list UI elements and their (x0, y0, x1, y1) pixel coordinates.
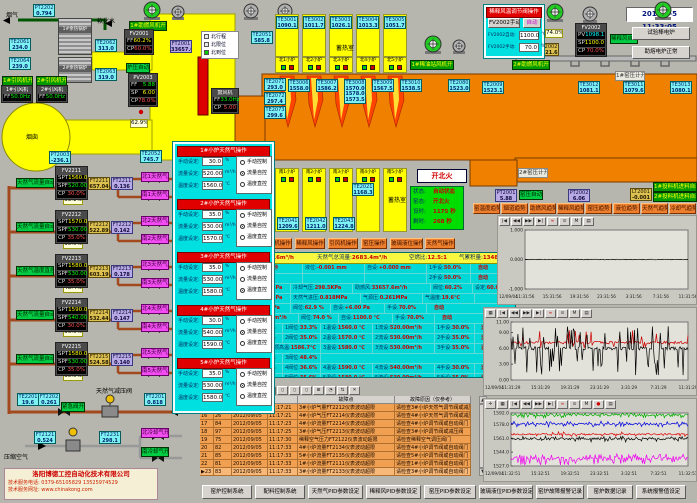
instrument-TE3003: TE30031026.1 (330, 16, 352, 29)
text-label: 烟囱 (26, 132, 38, 141)
utility-button[interactable]: 试验棒电炉 (632, 27, 690, 40)
hmi-furnace-control-screen: 2012-9-5 11:33:05 开北火 洛阳博德工控自动化技术有限公司 技术… (0, 0, 697, 503)
close-indicator (289, 177, 294, 182)
nav-button[interactable]: 窑炉数据记录 (587, 485, 633, 499)
svg-text:7:32:51: 7:32:51 (650, 471, 666, 476)
controller-row: SPT1580.0 (57, 263, 86, 270)
valve-open-badge: 北3天然气开 (141, 260, 169, 270)
valve-open-badge: 北1天然气开 (141, 172, 169, 182)
legend-square-icon (204, 42, 209, 47)
alarm-cell: 3#小炉气压FT2213仪表波动超限 (298, 428, 395, 436)
marker-icon[interactable]: M (569, 309, 580, 318)
text-label: 蓄热室 (336, 43, 354, 52)
setting-label: 温度设定: (178, 341, 200, 348)
rewind-icon[interactable]: ◀◀ (509, 309, 520, 318)
controller-row: FF50.0Hz (38, 94, 66, 101)
unit-label: % (225, 158, 229, 163)
instrument-FT2213: FT22130.178 (111, 265, 133, 278)
zoom-icon[interactable]: ⊙ (557, 309, 568, 318)
operation-button[interactable]: 天然气操作 (425, 238, 455, 249)
info-cell: 3阀位:48.4% (283, 354, 321, 363)
open-indicator (389, 177, 394, 182)
radio-icon (240, 277, 245, 282)
alarm-cell: 26 (214, 412, 232, 420)
legend-item: 北到位 (204, 49, 236, 57)
setting-label: 手动设定: (178, 264, 200, 271)
nav-button[interactable]: 玻璃液位PID参数设定 (479, 485, 533, 499)
setting-input[interactable]: 35.0 (202, 210, 223, 219)
mode-badge: 天然气流量自动 (16, 178, 54, 188)
first-icon[interactable]: |◀ (497, 309, 508, 318)
print-icon[interactable]: ▤ (605, 400, 616, 409)
open-indicator (389, 65, 394, 70)
svg-text:1592.0: 1592.0 (493, 411, 509, 417)
unit-label: m³/h (225, 170, 236, 175)
alarm-cell: 1#小炉流量FT2111仪表波动超限 (298, 460, 395, 468)
close-indicator (370, 65, 375, 70)
delete-icon[interactable]: ✕ (349, 386, 360, 395)
setting-input[interactable]: 1570.0 (202, 234, 223, 243)
radio-icon (240, 372, 245, 377)
info-cell: 1阀位:33.3% (283, 324, 321, 333)
info-cell: 4阀位:36.6% (283, 364, 321, 373)
port-south[interactable]: 南2小炉 (302, 170, 326, 186)
alarm-cell: 18 (200, 428, 214, 436)
info-cell: 1手设:30.0% (435, 324, 475, 333)
info-cell: 5流设:530.00m³/h (373, 374, 435, 378)
instrument-PT2001: PT20015.88 (495, 189, 517, 202)
instrument-FT2202: FT22020.261 (38, 393, 60, 406)
radio-option[interactable]: 手动控制 (237, 157, 271, 168)
controller-row: CP35.0% (57, 367, 86, 374)
controller-title: FV2211 (57, 168, 86, 174)
info-cell: 2手设:50.0% (427, 274, 471, 283)
setting-input[interactable]: 540.00 (202, 328, 223, 337)
manual-button[interactable]: FV2002手动 (488, 18, 520, 28)
mode-badge: 紧急阀开 (61, 402, 85, 412)
alarm-cell: 4#小炉气压FT2214仪表波动超限 (298, 412, 395, 420)
setting-label: 手动设定: (178, 317, 200, 324)
controller-title: FV2001 (126, 31, 152, 37)
unit-label: % (225, 370, 229, 375)
svg-text:7:31:56: 7:31:56 (653, 294, 669, 299)
sheet-icon[interactable]: ▯ (289, 386, 300, 395)
info-cell: 气温度:19.6℃ (423, 294, 475, 303)
alarm-cell: 11:17:30 (268, 436, 298, 444)
alarm-cell: 21 (200, 452, 214, 460)
port-north[interactable]: 北1小炉 (275, 57, 299, 73)
instrument-PT2003: PT2003-236.1 (49, 151, 71, 164)
auto-button[interactable]: 自动 (523, 18, 541, 28)
setpoint-input[interactable]: 1100.0 (519, 31, 539, 40)
legend-item: 北行程 (204, 33, 236, 41)
forward-icon[interactable]: ▶▶ (523, 217, 534, 226)
alarm-cell: ▶23 (200, 468, 214, 476)
instrument-TE3002: TE30021011.7 (303, 16, 325, 29)
mode-badge: 天然气温度直控 (16, 266, 54, 276)
operation-button[interactable]: 引风机操作 (328, 238, 358, 249)
alarm-cell: 11:17:33 (268, 468, 298, 476)
instrument-TE3007: TE30071586.2 (316, 79, 338, 92)
valve-open-badge: 南3天然气开 (141, 278, 169, 288)
close-indicator (289, 65, 294, 70)
port-label: 南3小炉 (329, 170, 353, 176)
alarm-cell: 2012/09/05 (232, 452, 268, 460)
last-icon[interactable]: ▶| (533, 309, 544, 318)
alarm-cell: 2012/09/05 (232, 436, 268, 444)
alarm-cell: 81 (214, 460, 232, 468)
alarm-col-header: 故障点 (298, 396, 395, 404)
curve-icon[interactable]: ≈ (547, 217, 558, 226)
instrument-TE3013: TE30131080.1 (670, 81, 692, 94)
status-row: 设时:1175 秒 (411, 207, 463, 217)
last-icon[interactable]: ▶| (535, 217, 546, 226)
controller-FV2002: FV2002PV1098.1SP1100.0CP70.0% (575, 23, 607, 57)
port-label: 南2小炉 (302, 170, 326, 176)
chart-toolbar: ✛▦|◀◀◀▶▶▶|≈⊙M●▤ (484, 399, 696, 410)
boiler-label: 1#余热锅炉 (59, 27, 91, 33)
radio-option[interactable]: 温度直控 (237, 285, 271, 296)
port-south[interactable]: 南5小炉 (383, 170, 407, 186)
radio-option[interactable]: 温度直控 (237, 179, 271, 190)
controller-row: CP35.0% (57, 235, 86, 242)
svg-text:15:31:56: 15:31:56 (543, 294, 562, 299)
info-cell: 阀位:62.9 % (291, 304, 331, 313)
alarm-cell: 16 (200, 412, 214, 420)
text-label: 软化水 (97, 16, 115, 25)
instrument-TE3004: TE30041013.3 (357, 16, 379, 29)
setpoint-input[interactable]: 70.0 (519, 43, 539, 52)
unit-label: ℃ (225, 235, 230, 240)
setting-label: 温度设定: (178, 182, 200, 189)
port-label: 北4小炉 (357, 58, 379, 64)
radio-option[interactable]: 手动控制 (237, 369, 271, 380)
reversal-legend: 北行程北限位北到位 (201, 31, 239, 59)
setting-input[interactable]: 35.0 (202, 263, 223, 272)
stop-icon[interactable]: ● (593, 400, 604, 409)
instrument-TE2073: TE2073299.6 (264, 106, 286, 119)
info-cell: 4温设:1590.0 ℃ (321, 364, 373, 373)
nav-button[interactable]: 窑炉故障报警记录 (536, 485, 584, 499)
radio-icon (240, 319, 245, 324)
nav-button[interactable]: 系统报警值设定 (636, 485, 686, 499)
window-icon[interactable]: ⊞ (313, 386, 324, 395)
radio-option[interactable]: 手动控制 (237, 263, 271, 274)
marker-icon[interactable]: M (571, 217, 582, 226)
alarm-cell: 4#小炉流量FT2214仪表波动超限 (298, 420, 395, 428)
svg-text:23:31:56: 23:31:56 (597, 294, 616, 299)
trend-button[interactable]: 天然气趋势 (641, 203, 668, 214)
controller-row: FF50.0Hz (3, 94, 31, 101)
instrument-FT2213: FT2213603.19 (88, 265, 110, 278)
instrument-FT2212: FT2212522.89 (88, 221, 110, 234)
sort-icon[interactable]: ⇅ (337, 386, 348, 395)
setting-input[interactable]: 1590.0 (202, 340, 223, 349)
instrument-TE2071: TE2071293.0 (264, 78, 286, 91)
rewind-icon[interactable]: ◀◀ (521, 400, 532, 409)
grid-icon[interactable]: ▦ (497, 400, 508, 409)
controller-FV2211: FV2211SPT1560.0SPF520.00CP30.0% (55, 166, 88, 200)
print-icon[interactable]: ▤ (583, 217, 594, 226)
info-cell: 自设:1100.0 ℃ (339, 314, 393, 323)
curve-icon[interactable]: ≈ (545, 309, 556, 318)
port-south[interactable]: 南3小炉 (329, 170, 353, 186)
setting-label: 温度设定: (178, 394, 200, 401)
controller-row: SPF530.00 (57, 271, 86, 278)
controller-FV2001: FV2001FF60.2%CP60.0% (124, 29, 154, 55)
open-indicator (335, 65, 340, 70)
open-indicator (308, 65, 313, 70)
alarm-cell: 请检查1#小炉调节阀或自动阀门 (395, 460, 471, 468)
port-indicators (357, 65, 379, 70)
operation-button[interactable]: 稀释风操作 (295, 238, 325, 249)
svg-text:7:31:29: 7:31:29 (650, 385, 666, 390)
svg-text:1544.0: 1544.0 (493, 450, 509, 456)
operation-button[interactable]: 窑压操作 (361, 238, 387, 249)
alarm-cell: 84 (214, 420, 232, 428)
setting-input[interactable]: 530.00 (202, 222, 223, 231)
trend-button[interactable]: 液位趋势 (613, 203, 640, 214)
port-indicators (384, 65, 406, 70)
port-indicators (303, 65, 325, 70)
port-indicators (302, 177, 326, 182)
setting-label: 流量设定: (178, 382, 200, 389)
open-indicator (362, 177, 367, 182)
info-cell: 1手设:50.0% (427, 264, 471, 273)
rewind-icon[interactable]: ◀◀ (511, 217, 522, 226)
instrument-FT2231: FT2231298.1 (99, 431, 121, 444)
svg-text:1578.0: 1578.0 (493, 422, 509, 428)
svg-text:11:31:56: 11:31:56 (679, 294, 696, 299)
unit-label: ℃ (541, 32, 546, 37)
print-icon[interactable]: ▤ (581, 309, 592, 318)
svg-text:11.00: 11.00 (496, 320, 509, 326)
alarm-cell: 请检查3#小炉天然气调节阀或减压阀 (395, 404, 471, 412)
unit-label: % (225, 264, 229, 269)
text-label: 压缩空气 (4, 452, 28, 461)
nav-button[interactable]: 窑压PID参数设定 (424, 485, 476, 499)
info-cell: 液位:-0.001 mm (303, 264, 365, 273)
port-north[interactable]: 北3小炉 (329, 57, 353, 73)
setting-input[interactable]: 1580.0 (202, 393, 223, 402)
zoom-icon[interactable]: ⊙ (559, 217, 570, 226)
info-cell: 2阀位:35.0% (283, 334, 321, 343)
control-mode-radio-group: 手动控制流量自控温度直控 (236, 209, 272, 247)
unit-label: m³/h (225, 223, 236, 228)
setting-input[interactable]: 530.00 (202, 381, 223, 390)
valve-position-readout: 74.0% (545, 29, 563, 38)
open-indicator (335, 177, 340, 182)
setting-input[interactable]: 520.00 (202, 169, 223, 178)
hand-icon[interactable]: ✛ (485, 400, 496, 409)
port-indicators (383, 177, 407, 182)
instrument-FT2214: FT2214532.44 (88, 309, 110, 322)
svg-text:11:31:29: 11:31:29 (679, 385, 696, 390)
nav-button[interactable]: 天然气PID参数设定 (308, 485, 363, 499)
radio-option[interactable]: 温度直控 (237, 232, 271, 243)
first-icon[interactable]: |◀ (499, 217, 510, 226)
setting-label: 手动设定: (178, 370, 200, 377)
controller-row: SPF540.00 (57, 315, 86, 322)
clock-icon[interactable]: ◔ (325, 386, 336, 395)
controller-row: SP1100.0 (577, 40, 605, 47)
setting-input[interactable]: 530.00 (202, 275, 223, 284)
trend-button[interactable]: 窑压趋势 (585, 203, 612, 214)
trend-button[interactable]: 稀释风趋势 (557, 203, 584, 214)
controller-row: CP5.00 (213, 105, 237, 112)
port-south[interactable]: 南1小炉 (275, 170, 299, 186)
close-indicator (343, 65, 348, 70)
info-cell: 助燃风:33657.6m³/h (353, 284, 431, 293)
radio-option[interactable]: 手动控制 (237, 316, 271, 327)
radio-option[interactable]: 流量自控 (237, 274, 271, 285)
info-cell (365, 274, 427, 283)
sheet-icon[interactable]: ▯ (277, 386, 288, 395)
trend-button[interactable]: 冷却气趋势 (669, 203, 696, 214)
controller-row: CP70.0% (577, 48, 605, 55)
instrument-TE2041: TE20411209.6 (277, 217, 299, 230)
port-label: 北1小炉 (276, 58, 298, 64)
radio-option[interactable]: 流量自控 (237, 327, 271, 338)
instrument-FT2215: FT2215524.58 (88, 353, 110, 366)
port-north[interactable]: 北4小炉 (356, 57, 380, 73)
info-cell: 自设:+6.00 Pa (331, 304, 385, 313)
setting-label: 温度设定: (178, 288, 200, 295)
controller-title: PV2003 (130, 75, 156, 81)
port-label: 南1小炉 (275, 170, 299, 176)
alarm-cell: 97 (214, 428, 232, 436)
alarm-cell: 请检查5#小炉调节阀或自动阀门 (395, 452, 471, 460)
instrument-TE2043: TE20431224.8 (333, 217, 355, 230)
valve-open-badge: 南5天然气开 (141, 366, 169, 376)
port-indicators (329, 177, 353, 182)
port-indicators (330, 65, 352, 70)
setting-input[interactable]: 30.0 (202, 316, 223, 325)
zoom-icon[interactable]: ⊙ (569, 400, 580, 409)
setting-input[interactable]: 30.0 (202, 157, 223, 166)
alarm-cell: 83 (214, 468, 232, 476)
close-indicator (343, 177, 348, 182)
setting-input[interactable]: 1560.0 (202, 181, 223, 190)
curve-icon[interactable]: ≈ (557, 400, 568, 409)
unit-label: % (225, 211, 229, 216)
text-label: 天然气减压阀 (96, 386, 132, 395)
text-label: 烟气 (6, 10, 18, 19)
alarm-cell: 11:17:33 (268, 452, 298, 460)
port-label: 南4小炉 (356, 170, 380, 176)
trend-button[interactable]: 助燃风趋势 (529, 203, 556, 214)
chart-plot-svg: 11.009.006.003.000.0012/09/0411:31:2915:… (484, 319, 696, 395)
last-icon[interactable]: ▶| (545, 400, 556, 409)
svg-text:3:31:56: 3:31:56 (626, 294, 642, 299)
close-indicator (316, 177, 321, 182)
forward-icon[interactable]: ▶▶ (533, 400, 544, 409)
radio-option[interactable]: 温度直控 (237, 391, 271, 402)
radio-option[interactable]: 手动控制 (237, 210, 271, 221)
unit-label: ℃ (225, 288, 230, 293)
nav-button[interactable]: 稀释风PID参数设定 (366, 485, 421, 499)
alarm-cell: 2012/09/05 (232, 460, 268, 468)
controller-row: SPT1580.0 (57, 351, 86, 358)
utility-button[interactable]: 助熔电炉正常 (632, 46, 690, 59)
alarm-cell: 请检查4#小炉调节阀或自动阀门 (395, 420, 471, 428)
alarm-cell: 3#小炉流量FT2133仪表波动超限 (298, 468, 395, 476)
nav-button[interactable]: 窑炉控制系统 (202, 485, 252, 499)
radio-icon (240, 182, 245, 187)
port-north[interactable]: 北5小炉 (383, 57, 407, 73)
port-indicators (356, 177, 380, 182)
valve-open-badge: 南2天然气开 (141, 234, 169, 244)
grid-icon[interactable]: ▦ (485, 309, 496, 318)
controller-row: FF5.88 (130, 82, 156, 89)
svg-text:1.000: 1.000 (510, 228, 523, 234)
instrument-FT2214: FT22140.147 (111, 309, 133, 322)
unit-label: m³/h (225, 276, 236, 281)
radio-icon (240, 383, 245, 388)
boiler-label: 2#余热锅炉 (59, 66, 91, 72)
radio-option[interactable]: 流量自控 (237, 221, 271, 232)
forward-icon[interactable]: ▶▶ (521, 309, 532, 318)
status-badge: 2#助燃风机开 (512, 60, 550, 70)
instrument-PT2002: PT20026.06 (568, 189, 590, 202)
marker-icon[interactable]: M (581, 400, 592, 409)
setting-input[interactable]: 35.0 (202, 369, 223, 378)
nav-button[interactable]: 配料控制系统 (255, 485, 305, 499)
fire-direction-box: 开北火 (417, 169, 467, 183)
unit-label: ℃ (225, 341, 230, 346)
setting-input[interactable]: 1580.0 (202, 287, 223, 296)
svg-text:1527.0: 1527.0 (493, 464, 509, 470)
trend-button[interactable]: 烟道趋势 (501, 203, 528, 214)
radio-icon (240, 160, 245, 165)
controller-row: FF60.2% (126, 38, 152, 45)
alarm-cell: 20 (200, 444, 214, 452)
sheet-icon[interactable]: ▯ (301, 386, 312, 395)
instrument-LT2001: LT2001-0.001 (630, 188, 652, 201)
first-icon[interactable]: |◀ (509, 400, 520, 409)
control-mode-tag: 自动 (435, 314, 459, 323)
instrument-FT2211: FT22110.136 (111, 177, 133, 190)
radio-icon (240, 394, 245, 399)
port-label: 南5小炉 (383, 170, 407, 176)
port-north[interactable]: 北2小炉 (302, 57, 326, 73)
controller-鼓风机: 鼓风机FF33.0HzCP5.00 (211, 88, 239, 114)
mode-badge: 天然气流量自动 (16, 310, 54, 320)
radio-option[interactable]: 温度直控 (237, 338, 271, 349)
info-cell: 2手设:35.0% (435, 334, 475, 343)
info-cell: 1流设:520.00m³/h (373, 324, 435, 333)
info-cell: 2温设:1570.0 ℃ (321, 334, 373, 343)
device-status-badge: 1#窑压计开 (615, 71, 645, 81)
alarm-cell: 稀释空气压力FT2122仪表波动超限 (298, 436, 395, 444)
controller-title: FV2215 (57, 344, 86, 350)
chart-toolbar: |◀◀◀▶▶▶|≈⊙M▤ (498, 216, 696, 227)
alarm-cell: 11:17:33 (268, 460, 298, 468)
radio-option[interactable]: 流量自控 (237, 380, 271, 391)
svg-text:1561.0: 1561.0 (493, 436, 509, 442)
operation-button[interactable]: 玻璃液位操作 (390, 238, 423, 249)
svg-text:19:31:56: 19:31:56 (570, 294, 589, 299)
radio-option[interactable]: 流量自控 (237, 168, 271, 179)
svg-text:15:31:29: 15:31:29 (531, 385, 550, 390)
trend-button[interactable]: 窑温度趋势 (473, 203, 500, 214)
mode-badge: 天然气流量自动 (16, 222, 54, 232)
alarm-cell: 2012/09/05 (232, 428, 268, 436)
info-cell: 手设:70.0% (385, 304, 427, 313)
popup-title: 稀释风温调节阀操作 (486, 7, 542, 18)
controller-row: SPT1560.0 (57, 175, 86, 182)
alarm-cell: 2012/09/05 (232, 444, 268, 452)
